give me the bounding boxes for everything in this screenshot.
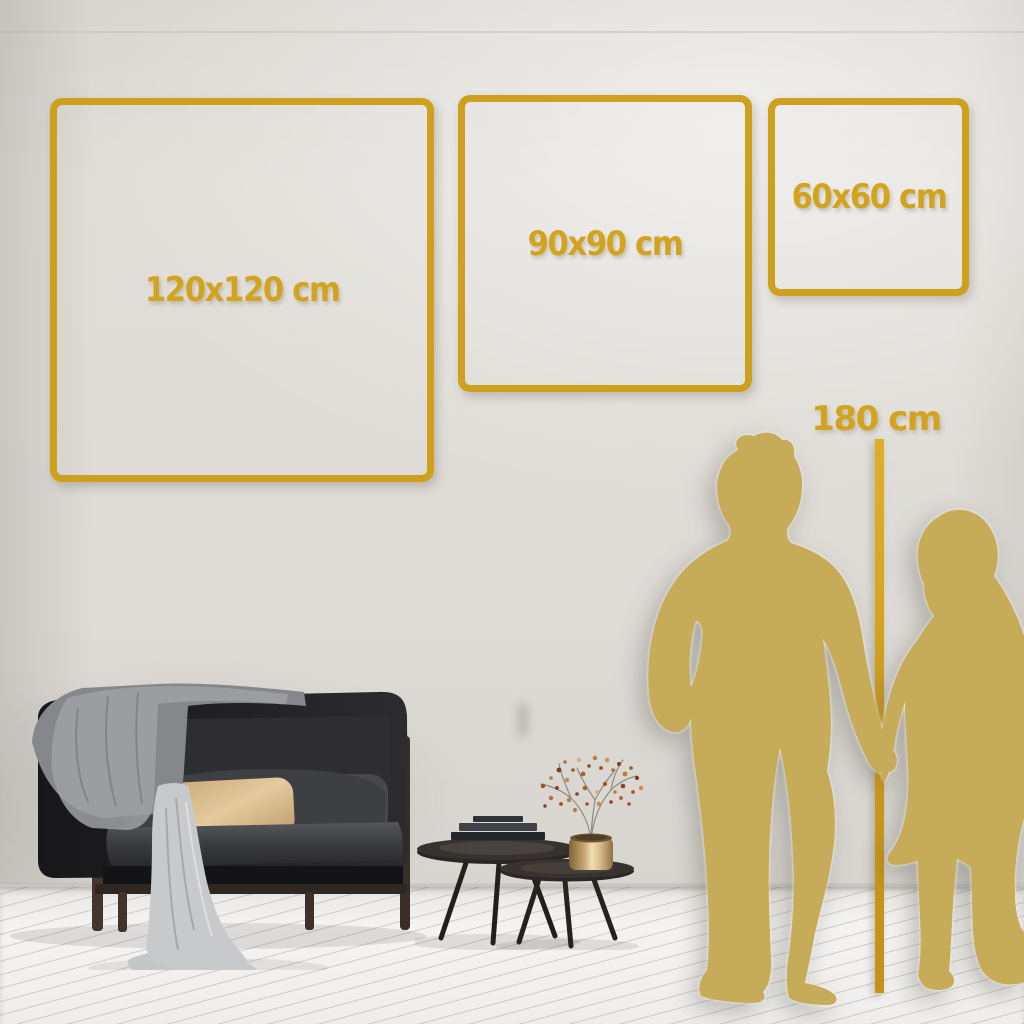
size-label-60: 60x60 cm [791,177,946,217]
coffee-tables-illustration [415,740,650,950]
wall-smudge [519,701,527,739]
woman-silhouette [879,510,1024,990]
man-silhouette [648,433,897,1005]
size-label-90: 90x90 cm [528,224,683,264]
brass-vase [569,834,613,871]
plant-berries [541,756,643,812]
plant-branches [541,760,637,840]
small-table [500,859,634,946]
size-frame-90: 90x90 cm [458,95,752,392]
books-stack [451,816,545,840]
size-frame-60: 60x60 cm [768,98,969,296]
size-label-120: 120x120 cm [145,270,340,310]
ceiling-line [0,31,1024,33]
size-frame-120: 120x120 cm [50,98,434,482]
couple-silhouette [640,430,1024,1014]
height-marker-label: 180 cm [806,399,946,439]
sofa-illustration [8,678,440,970]
large-table [417,838,577,943]
size-guide-scene: 120x120 cm 90x90 cm 60x60 cm 180 cm [0,0,1024,1024]
